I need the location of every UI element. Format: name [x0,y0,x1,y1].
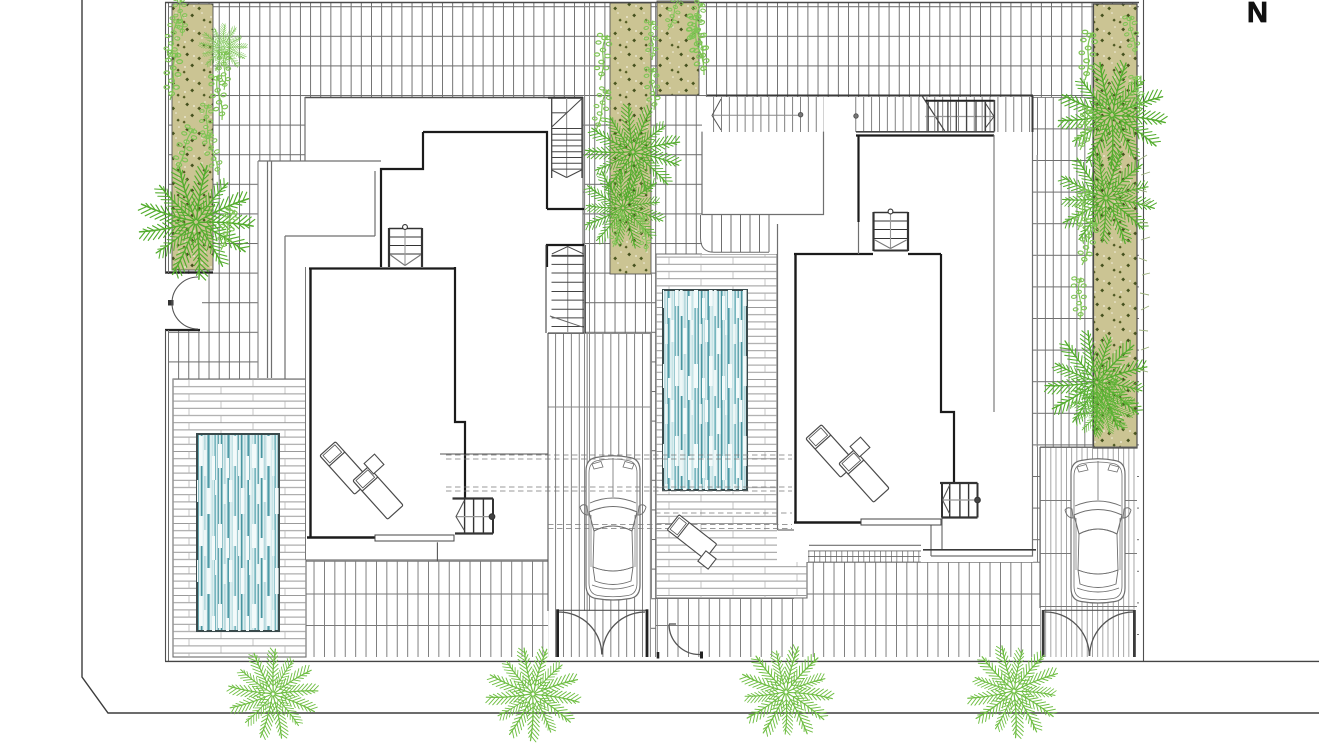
svg-text:N: N [1247,0,1268,29]
